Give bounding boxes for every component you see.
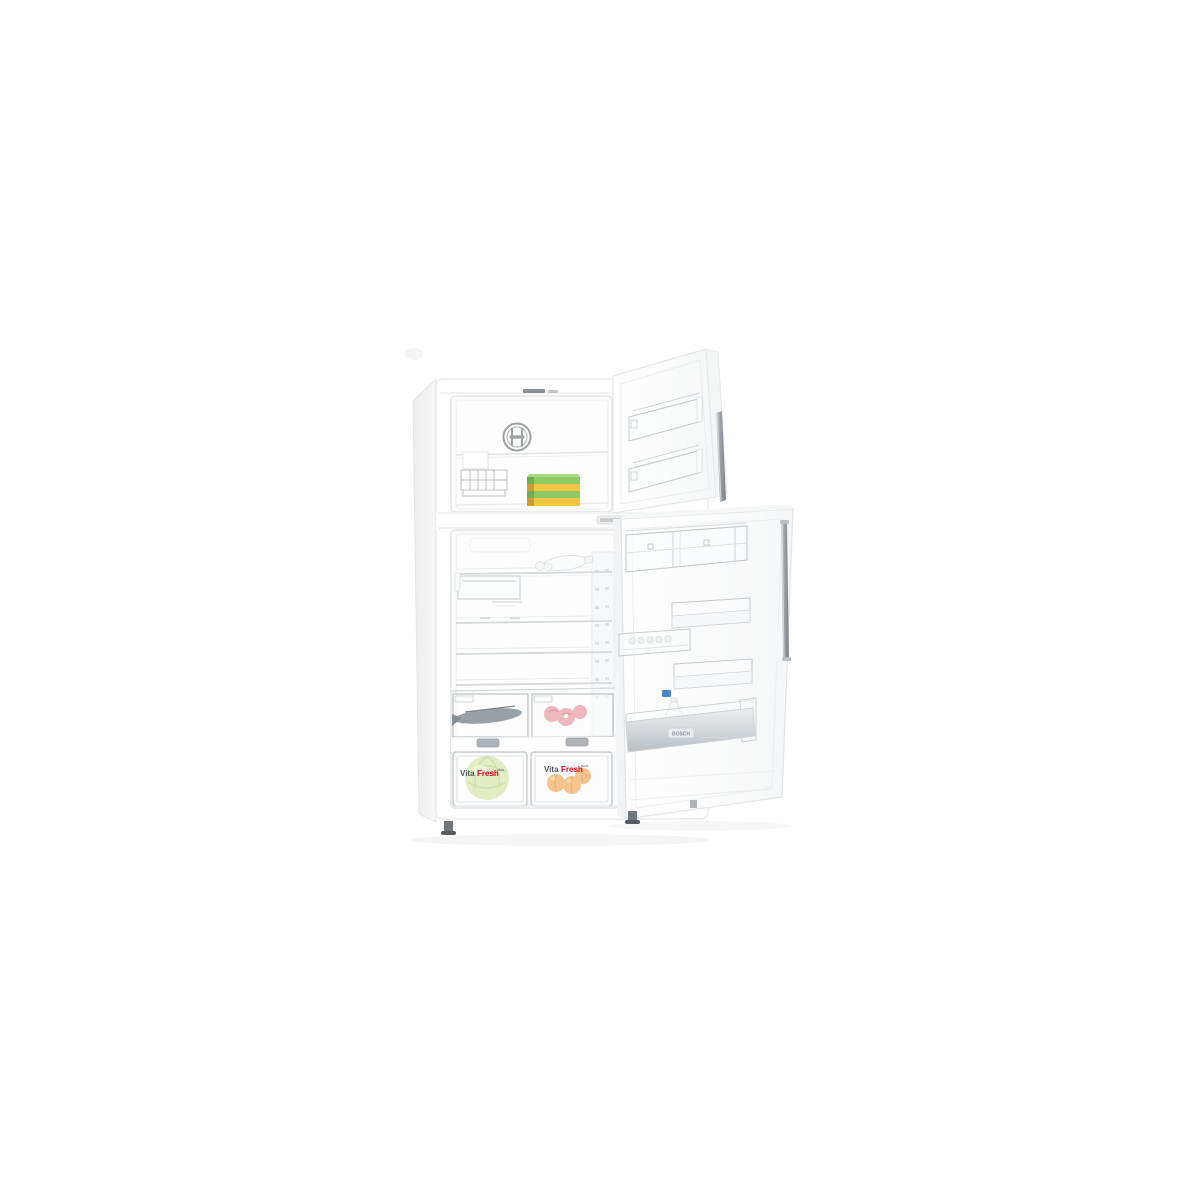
- bosch-badge-text: BOSCH: [672, 732, 690, 738]
- frozen-food-boxes: [527, 474, 580, 506]
- vitafresh-left-label-fresh: Fresh: [477, 769, 499, 778]
- vitafresh-right-label-plus: plus: [581, 763, 588, 768]
- refrigerator-photo: Vita Fresh plus Vita Fresh plus: [0, 0, 1200, 1200]
- badge-print-line: [700, 733, 740, 735]
- cabinet-side-panel: [413, 379, 436, 822]
- drawer-rail: [451, 736, 618, 752]
- chiller-drawer-meat: [532, 694, 613, 737]
- vitafresh-drawer-right: Vita Fresh plus: [531, 752, 612, 806]
- freezer-vent: [523, 389, 545, 393]
- badge-print-line2: [700, 737, 728, 738]
- freezer-vent-small: [548, 390, 558, 393]
- refrigerator: Vita Fresh plus Vita Fresh plus: [413, 349, 793, 835]
- vitafresh-drawer-left: Vita Fresh plus: [453, 752, 527, 806]
- freezer-compartment: [451, 396, 612, 512]
- backwall-print: [492, 601, 522, 603]
- vitafresh-left-label-vita: Vita: [460, 769, 475, 778]
- interior-light: [470, 538, 530, 552]
- bottle-cap-tag: [662, 690, 671, 697]
- vitafresh-right-glass-front: [531, 752, 612, 806]
- vitafresh-left-label-plus: plus: [497, 767, 504, 772]
- fridge-door: BOSCH: [613, 504, 793, 819]
- freezer-door: [613, 349, 727, 513]
- backwall-print-line2: [496, 605, 516, 607]
- handle-mount-bottom: [782, 657, 791, 661]
- bosch-badge: BOSCH: [668, 728, 694, 738]
- product-photo-canvas: Vita Fresh plus Vita Fresh plus: [0, 0, 1200, 1200]
- background-smudge: [405, 348, 423, 360]
- vitafresh-right-label-vita: Vita: [544, 765, 559, 774]
- vitafresh-right-label-fresh: Fresh: [561, 765, 583, 774]
- chiller-drawer-fish: [452, 694, 528, 737]
- floor-shadow: [410, 834, 710, 846]
- bosch-emblem-icon: [504, 424, 531, 451]
- rail-handle-left: [477, 739, 499, 747]
- vitafresh-left-glass-front: [453, 752, 527, 806]
- fridge-compartment: Vita Fresh plus Vita Fresh plus: [451, 530, 618, 808]
- leveling-foot-door-right: [690, 800, 697, 808]
- leveling-foot-left: [441, 821, 456, 835]
- hanging-chiller-box: [455, 573, 520, 599]
- handle-mount-top: [780, 520, 789, 524]
- rail-handle-right: [566, 738, 588, 746]
